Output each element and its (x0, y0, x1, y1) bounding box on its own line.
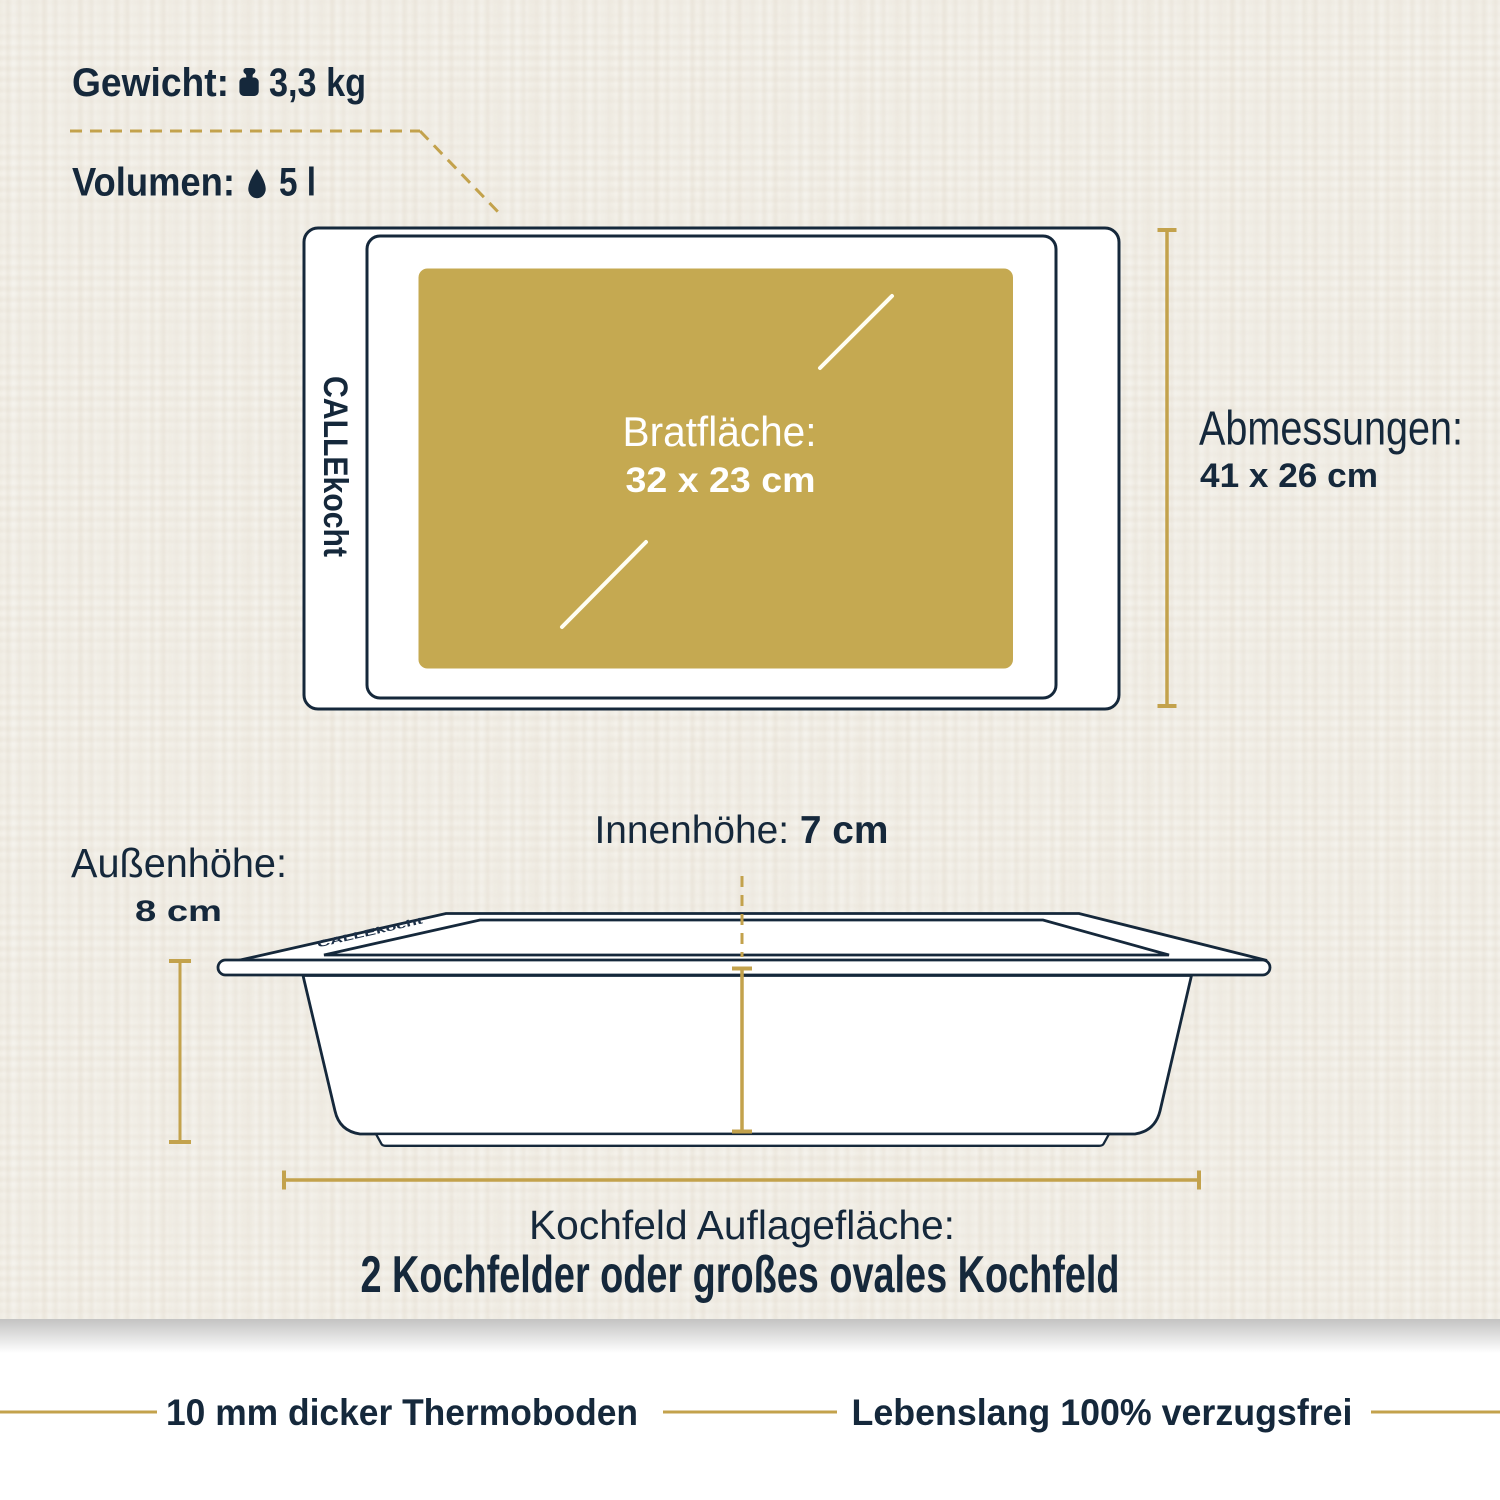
svg-text:Kochfeld Auflagefläche:: Kochfeld Auflagefläche: (529, 1202, 955, 1248)
svg-text:10 mm dicker Thermoboden: 10 mm dicker Thermoboden (166, 1392, 638, 1433)
svg-text:Volumen:: Volumen: (72, 161, 235, 205)
svg-text:Bratfläche:: Bratfläche: (623, 408, 817, 455)
svg-text:2 Kochfelder oder großes ovale: 2 Kochfelder oder großes ovales Kochfeld (361, 1246, 1120, 1304)
svg-text:Lebenslang 100% verzugsfrei: Lebenslang 100% verzugsfrei (852, 1392, 1353, 1433)
svg-text:Außenhöhe:: Außenhöhe: (71, 840, 287, 886)
svg-text:5 l: 5 l (279, 161, 316, 205)
svg-text:CALLEkocht: CALLEkocht (316, 376, 354, 557)
svg-text:Abmessungen:: Abmessungen: (1199, 403, 1463, 456)
svg-text:8 cm: 8 cm (135, 895, 222, 928)
svg-text:41 x 26 cm: 41 x 26 cm (1200, 457, 1378, 495)
svg-text:Gewicht:: Gewicht: (72, 61, 229, 105)
svg-text:32 x 23 cm: 32 x 23 cm (626, 461, 816, 500)
svg-text:Innenhöhe: 7 cm: Innenhöhe: 7 cm (595, 809, 889, 852)
svg-text:3,3 kg: 3,3 kg (269, 61, 366, 105)
